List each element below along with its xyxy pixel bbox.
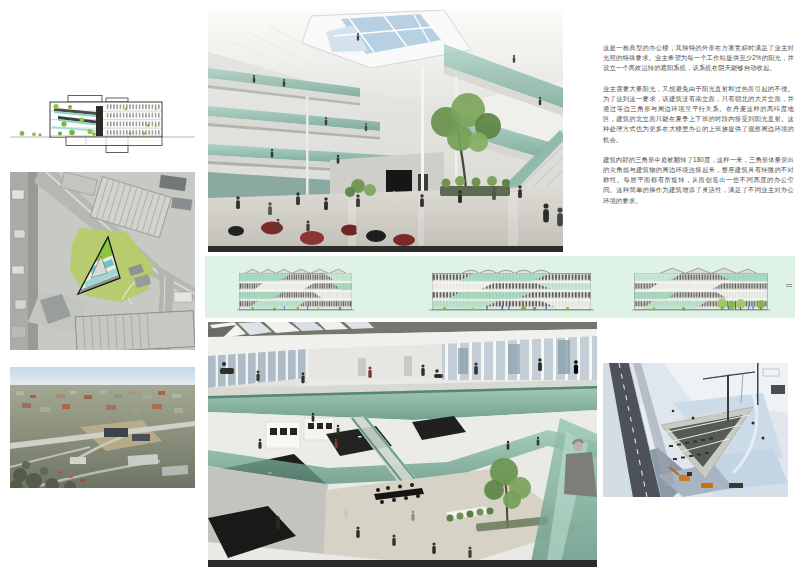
presentation-board: 这是一栋典型的办公楼，其独特的外形在方案竞标时满足了业主对光照的特殊要求。业主希… xyxy=(0,0,800,573)
project-description: 这是一栋典型的办公楼，其独特的外形在方案竞标时满足了业主对光照的特殊要求。业主希… xyxy=(603,43,794,216)
atrium-render-lobby xyxy=(208,10,563,252)
warehouse-south xyxy=(75,311,195,350)
site-trees xyxy=(20,131,42,136)
description-paragraph-2: 业主需要大量阳光，又想避免由于阳光直射和过热而引起的不便。为了达到这一要求，该建… xyxy=(603,84,794,145)
elevations-strip xyxy=(205,256,795,318)
construction-photo-panel xyxy=(603,363,788,497)
site-plan-panel xyxy=(10,172,195,350)
building-section-drawing xyxy=(10,60,195,160)
atrium-render-top-panel xyxy=(208,10,563,252)
construction-aerial-photo xyxy=(603,363,788,497)
atrium-render-bottom-panel xyxy=(208,322,597,567)
edge-marker xyxy=(786,283,792,290)
description-paragraph-3: 建筑内部的三角形中庭被翻转了180度，这样一来，三角形体量突出的尖角就与建筑物的… xyxy=(603,155,794,206)
description-paragraph-1: 这是一栋典型的办公楼，其独特的外形在方案竞标时满足了业主对光照的特殊要求。业主希… xyxy=(603,43,794,74)
elevation-drawing-2 xyxy=(429,264,594,316)
photo-bottom-edge xyxy=(208,246,563,252)
section-drawing-panel xyxy=(10,60,195,160)
photo-bottom-edge xyxy=(208,560,597,567)
aerial-photo-panel xyxy=(10,367,195,488)
site-plan-map xyxy=(10,172,195,350)
section-building xyxy=(50,96,162,153)
elevation-drawing-3 xyxy=(632,264,770,316)
atrium-render-overview xyxy=(208,322,597,567)
basement xyxy=(66,137,162,146)
aerial-city-photo xyxy=(10,367,195,488)
elevation-drawing-1 xyxy=(237,264,354,316)
basement-pit xyxy=(106,146,128,153)
